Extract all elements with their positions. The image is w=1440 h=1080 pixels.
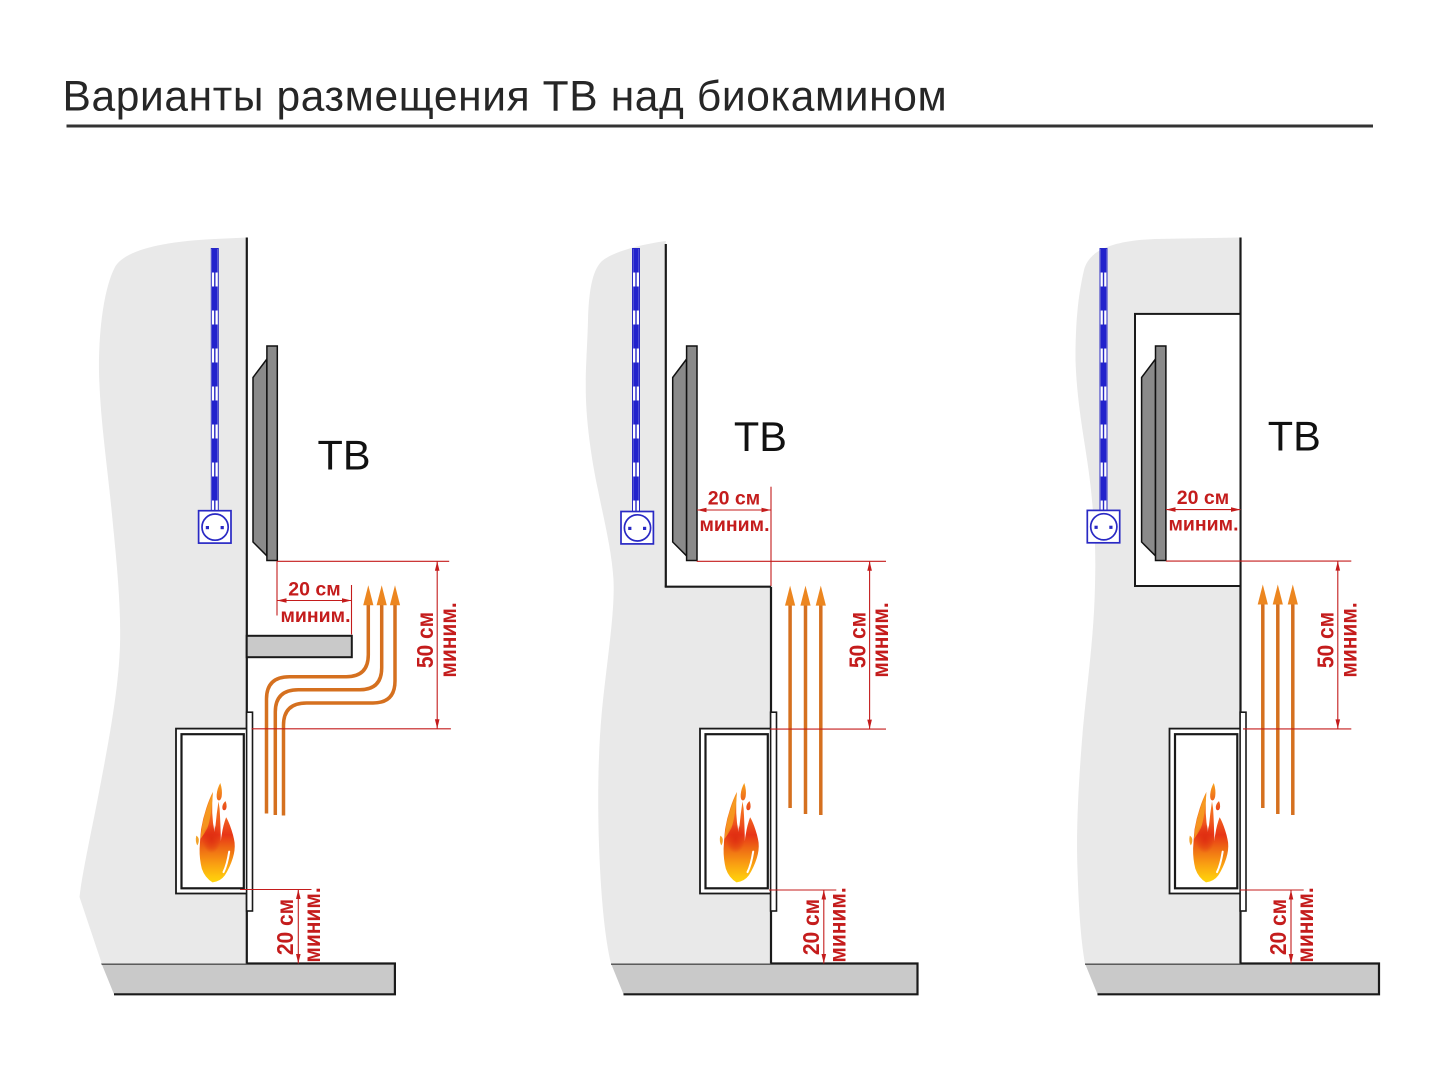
svg-text:миним.: миним. bbox=[299, 887, 325, 962]
svg-text:миним.: миним. bbox=[867, 602, 893, 677]
svg-text:ТВ: ТВ bbox=[1268, 413, 1321, 460]
svg-text:миним.: миним. bbox=[699, 514, 769, 536]
svg-text:20 см: 20 см bbox=[708, 488, 760, 510]
svg-text:ТВ: ТВ bbox=[734, 413, 787, 460]
svg-text:Варианты размещения ТВ над био: Варианты размещения ТВ над биокамином bbox=[63, 74, 948, 121]
svg-text:20 см: 20 см bbox=[288, 578, 340, 600]
svg-text:ТВ: ТВ bbox=[318, 432, 371, 479]
svg-text:миним.: миним. bbox=[435, 602, 461, 677]
svg-text:20 см: 20 см bbox=[272, 899, 298, 955]
svg-text:20 см: 20 см bbox=[1177, 487, 1229, 509]
svg-text:миним.: миним. bbox=[1335, 602, 1361, 677]
svg-text:миним.: миним. bbox=[280, 605, 350, 627]
svg-text:миним.: миним. bbox=[1292, 887, 1318, 962]
svg-text:20 см: 20 см bbox=[798, 899, 824, 955]
svg-text:миним.: миним. bbox=[1168, 514, 1238, 536]
svg-text:20 см: 20 см bbox=[1265, 899, 1291, 955]
svg-text:миним.: миним. bbox=[825, 887, 851, 962]
